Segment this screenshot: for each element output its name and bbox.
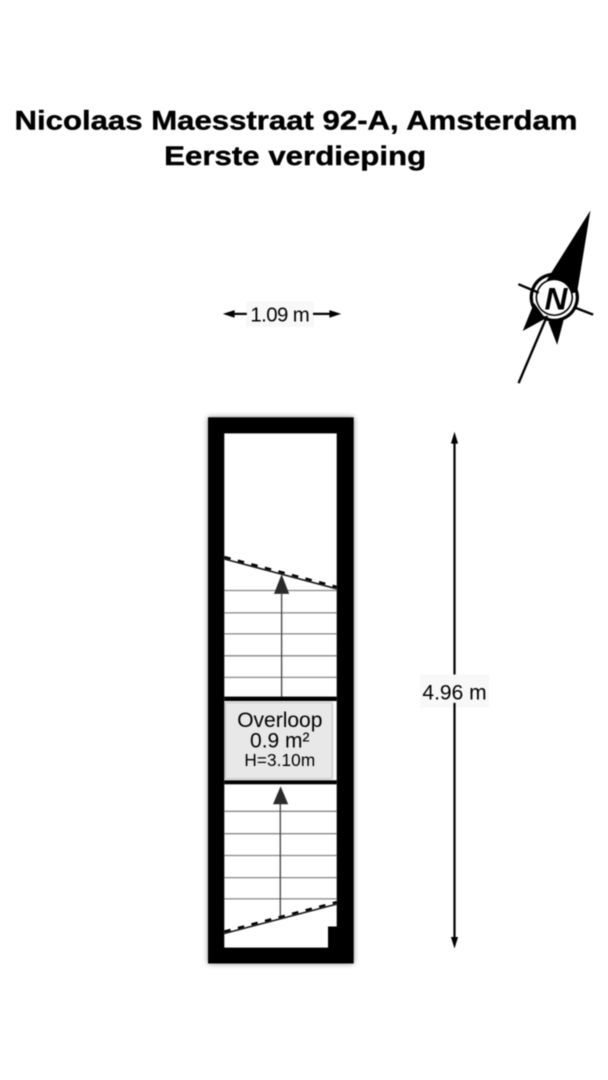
svg-text:N: N	[545, 281, 569, 317]
svg-text:Eerste verdieping: Eerste verdieping	[164, 141, 426, 171]
svg-text:0.9 m²: 0.9 m²	[250, 729, 310, 752]
svg-text:4.96 m: 4.96 m	[422, 681, 486, 704]
svg-text:H=3.10m: H=3.10m	[244, 750, 315, 770]
svg-text:Nicolaas Maesstraat 92-A, Amst: Nicolaas Maesstraat 92-A, Amsterdam	[15, 106, 578, 136]
svg-text:1.09 m: 1.09 m	[250, 304, 309, 326]
